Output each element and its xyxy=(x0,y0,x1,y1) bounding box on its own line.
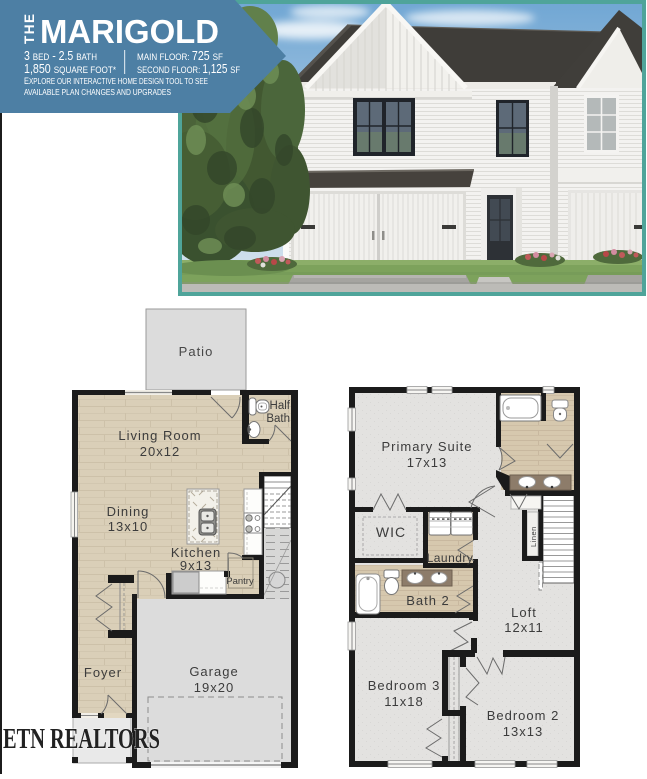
svg-text:EXPLORE OUR INTERACTIVE HOME D: EXPLORE OUR INTERACTIVE HOME DESIGN TOOL… xyxy=(24,76,208,86)
svg-text:Bath 2: Bath 2 xyxy=(406,593,450,608)
svg-text:Loft: Loft xyxy=(511,605,537,620)
svg-text:13x10: 13x10 xyxy=(108,519,148,534)
svg-text:1,850 SQUARE FOOT*: 1,850 SQUARE FOOT* xyxy=(24,62,116,76)
svg-text:THE: THE xyxy=(22,13,37,45)
svg-text:Garage: Garage xyxy=(189,664,238,679)
svg-text:Bath: Bath xyxy=(266,413,290,425)
svg-text:12x11: 12x11 xyxy=(504,620,543,635)
svg-text:WIC: WIC xyxy=(376,524,406,540)
svg-text:Bedroom 3: Bedroom 3 xyxy=(368,678,441,693)
svg-text:SECOND FLOOR: 1,125 SF: SECOND FLOOR: 1,125 SF xyxy=(137,62,240,76)
svg-text:19x20: 19x20 xyxy=(194,680,234,695)
svg-text:20x12: 20x12 xyxy=(140,444,180,459)
svg-text:Linen: Linen xyxy=(529,526,538,547)
svg-text:Patio: Patio xyxy=(179,344,214,359)
svg-text:MAIN FLOOR: 725 SF: MAIN FLOOR: 725 SF xyxy=(137,49,223,63)
svg-text:Living Room: Living Room xyxy=(118,428,201,443)
svg-text:ETN REALTORS: ETN REALTORS xyxy=(3,723,160,755)
svg-text:Primary Suite: Primary Suite xyxy=(381,439,472,454)
svg-text:9x13: 9x13 xyxy=(180,558,212,573)
svg-text:AVAILABLE PLAN CHANGES AND UPG: AVAILABLE PLAN CHANGES AND UPGRADES xyxy=(24,88,171,97)
svg-text:Half: Half xyxy=(270,400,291,412)
svg-text:MARIGOLD: MARIGOLD xyxy=(40,13,219,50)
svg-text:11x18: 11x18 xyxy=(384,694,423,709)
svg-text:Foyer: Foyer xyxy=(84,665,122,680)
svg-text:Dining: Dining xyxy=(107,504,150,519)
svg-text:13x13: 13x13 xyxy=(503,724,543,739)
svg-text:17x13: 17x13 xyxy=(407,455,447,470)
svg-text:Bedroom 2: Bedroom 2 xyxy=(487,708,560,723)
svg-text:Laundry: Laundry xyxy=(427,551,474,565)
svg-text:Pantry: Pantry xyxy=(226,576,254,587)
svg-text:3 BED - 2.5 BATH: 3 BED - 2.5 BATH xyxy=(24,49,97,63)
